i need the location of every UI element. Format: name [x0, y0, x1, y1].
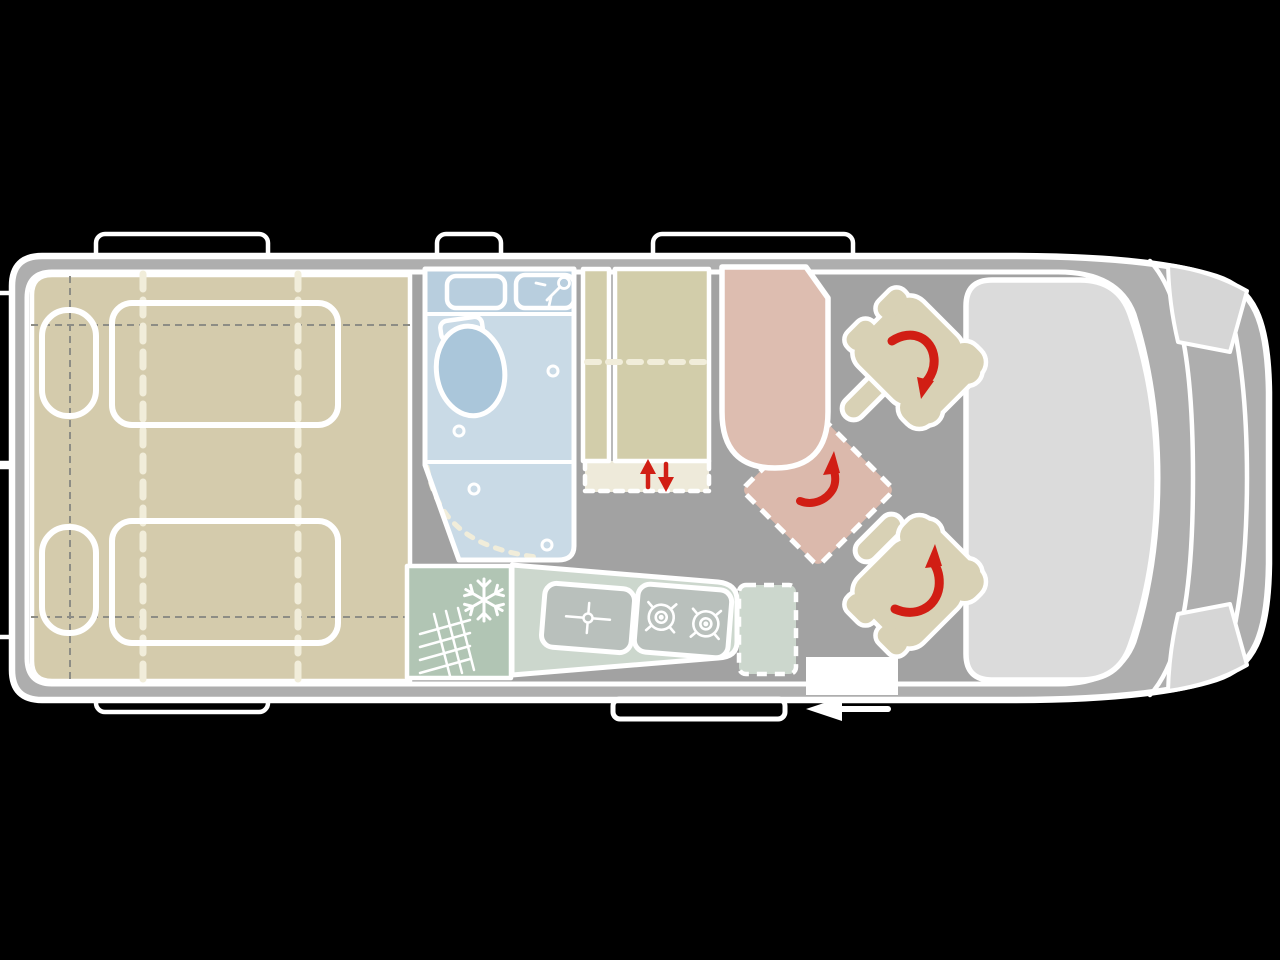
rear-bed-area	[31, 274, 410, 681]
wardrobe	[583, 269, 709, 492]
floorplan-canvas	[0, 0, 1280, 960]
campervan-floorplan	[0, 0, 1280, 960]
entry-step	[806, 657, 898, 695]
kitchen-sink	[541, 582, 636, 653]
bathroom	[425, 269, 574, 560]
headlight	[1168, 265, 1247, 352]
sink-basin	[541, 582, 636, 653]
stove	[633, 583, 732, 658]
counter-extension-flap	[739, 585, 796, 674]
bench-seat	[722, 267, 828, 468]
windshield	[966, 280, 1157, 680]
bed-platform	[32, 275, 410, 681]
headlight	[1168, 604, 1247, 691]
